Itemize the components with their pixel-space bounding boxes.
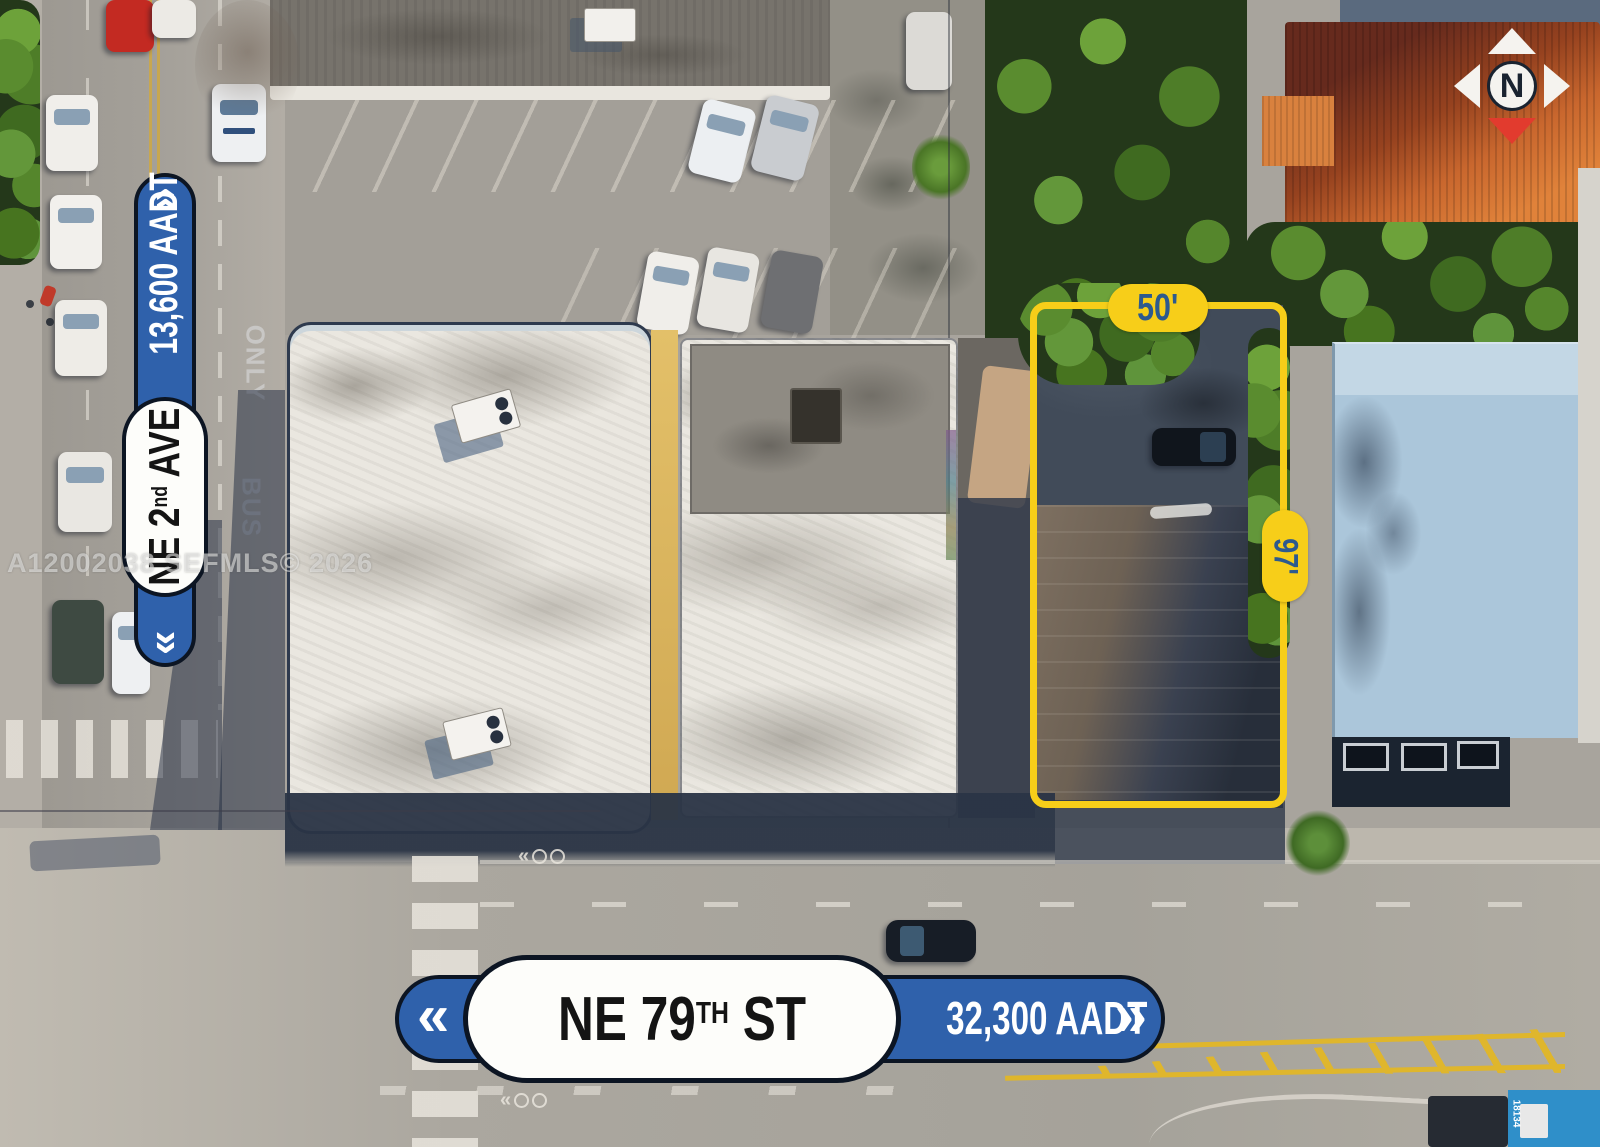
aadt-label: 13,600 AADT [138, 203, 192, 385]
lot-depth-pill: 97' [1262, 510, 1308, 602]
palm-tree [1286, 810, 1350, 876]
parked-car [58, 452, 112, 532]
parked-car [52, 600, 104, 684]
mls-watermark: A12002038 SEFMLS© 2026 [7, 548, 373, 579]
alley-shadow [958, 498, 1035, 818]
bike-chevron-icon: « [518, 846, 529, 866]
parked-car [55, 300, 107, 376]
roof-edge-tan-strip [651, 330, 678, 820]
compass-north-letter: N [1500, 67, 1525, 106]
street-name-label: NE 79TH ST [558, 984, 806, 1055]
building-terracotta-wing [1262, 96, 1334, 166]
palm-tree [912, 132, 970, 202]
compass-right-arrow-icon [1544, 64, 1570, 108]
graffiti-wall-edge [946, 430, 956, 560]
bare-tree [195, 0, 300, 130]
driving-car [886, 920, 976, 962]
power-line-shadow [0, 810, 600, 812]
street-sign-ne-79th-st: « NE 79TH ST 32,300 AADT » [395, 975, 1165, 1063]
lane-dashes [480, 902, 1600, 907]
bike-wheel-icon [550, 849, 565, 864]
compass-down-arrow-icon [1488, 118, 1536, 144]
sign-chevron-icon: » [138, 187, 192, 211]
bike-wheel-icon [532, 849, 547, 864]
sign-chevron-icon: » [1115, 979, 1147, 1059]
compass-circle: N [1487, 61, 1537, 111]
building-far-right [1578, 168, 1600, 743]
north-compass: N [1452, 28, 1572, 144]
pedestrian [26, 300, 34, 308]
compass-left-arrow-icon [1454, 64, 1480, 108]
truck-trailer [1428, 1096, 1508, 1147]
skylight-vent [1401, 743, 1447, 771]
lot-outline [1030, 302, 1287, 808]
aadt-label: 32,300 AADT [907, 979, 1107, 1059]
lot-frontage-pill: 50' [1108, 284, 1208, 332]
building-top-left-parapet [270, 86, 830, 100]
bike-lane-symbol: « [518, 846, 565, 866]
roof-vent-dark [790, 388, 842, 444]
tree-row-below-terracotta [1245, 222, 1600, 346]
skylight-vent [1457, 741, 1499, 769]
lot-depth-label: 97' [1266, 538, 1305, 575]
building-top-left [270, 0, 830, 92]
edge-line [480, 860, 1600, 864]
parking-stripes [300, 100, 960, 192]
tree-west-sidewalk [0, 0, 40, 265]
aerial-listing-photo: ONLY BUS [0, 0, 1600, 1147]
parked-car [46, 95, 98, 171]
angled-dashes [380, 1086, 940, 1095]
lot-shadow-band [1055, 800, 1285, 864]
lot-frontage-label: 50' [1137, 287, 1178, 330]
parked-car [152, 0, 196, 38]
compass-up-arrow-icon [1488, 28, 1536, 54]
parked-van [906, 12, 952, 90]
street-name-pill: NE 79TH ST [463, 955, 901, 1083]
sign-chevron-icon: « [138, 631, 192, 655]
parked-car [106, 0, 154, 52]
pedestrian [46, 318, 54, 326]
skylight-vent [1343, 743, 1389, 771]
sign-chevron-icon: « [417, 979, 449, 1059]
building-blue-roof [1332, 342, 1578, 738]
truck-cab: 18134 [1508, 1090, 1600, 1147]
truck-number: 18134 [1510, 1100, 1521, 1128]
parked-car [50, 195, 102, 269]
street-sign-ne-2nd-ave: « NE 2nd AVE 13,600 AADT » [134, 173, 196, 667]
building-shadow-band [285, 793, 1055, 867]
rooftop-ac-unit [584, 8, 636, 42]
